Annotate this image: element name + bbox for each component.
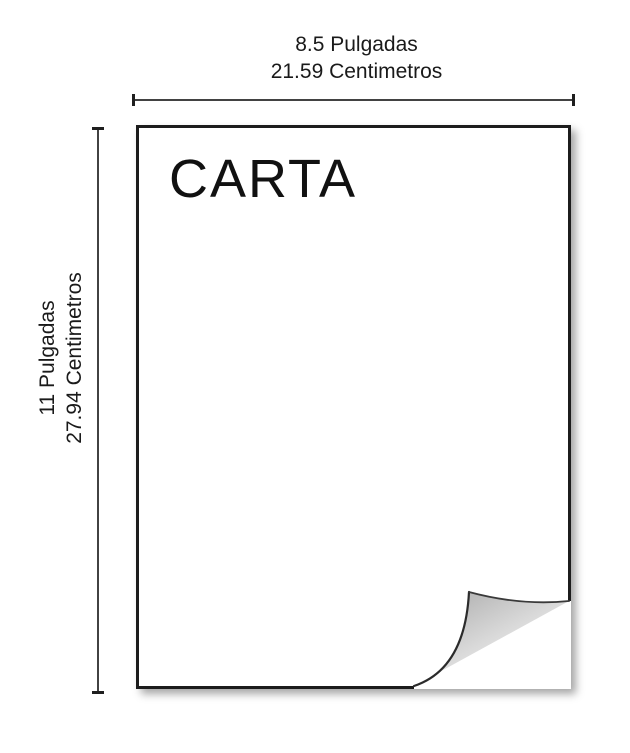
height-dimension-line [97,128,99,693]
page-curl-icon [401,579,571,689]
width-line-right-tick [572,94,575,106]
height-inches-label: 11 Pulgadas [34,208,61,508]
width-inches-label: 8.5 Pulgadas [136,31,577,58]
paper-sheet: CARTA [136,125,571,689]
width-line-left-tick [132,94,135,106]
width-dimension-label: 8.5 Pulgadas 21.59 Centimetros [136,31,577,85]
width-centimeters-label: 21.59 Centimetros [136,58,577,85]
height-dimension-label: 11 Pulgadas 27.94 Centimetros [34,208,88,508]
width-dimension-line [133,99,574,101]
height-line-bottom-tick [92,691,104,694]
height-line-top-tick [92,127,104,130]
paper-size-title: CARTA [169,152,357,206]
height-centimeters-label: 27.94 Centimetros [61,208,88,508]
